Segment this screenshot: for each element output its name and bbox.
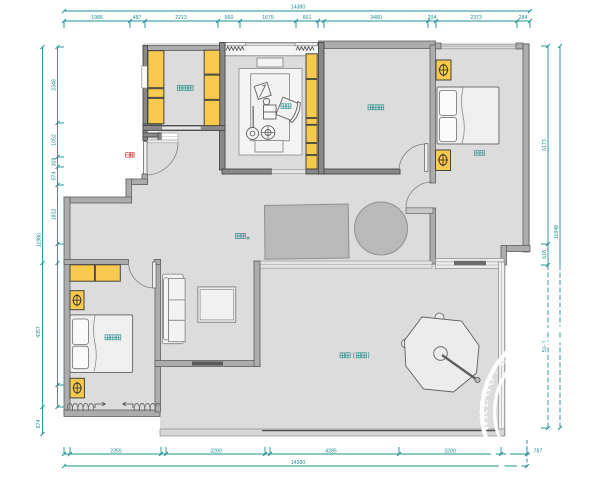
svg-text:2213: 2213 — [175, 15, 187, 21]
svg-text:11948: 11948 — [554, 225, 560, 239]
svg-text:618: 618 — [542, 250, 548, 259]
svg-text:674: 674 — [36, 420, 42, 429]
svg-text:660: 660 — [225, 15, 234, 21]
svg-text:E: E — [477, 399, 492, 408]
svg-text:3200: 3200 — [210, 449, 222, 455]
svg-text:4357: 4357 — [36, 326, 42, 338]
svg-text:2373: 2373 — [470, 15, 482, 21]
svg-text:661: 661 — [303, 15, 312, 21]
svg-text:14380: 14380 — [291, 460, 306, 466]
svg-text:308: 308 — [52, 158, 58, 167]
svg-text:2348: 2348 — [52, 79, 58, 91]
svg-text:4285: 4285 — [325, 449, 337, 455]
svg-text:1832: 1832 — [52, 209, 58, 221]
svg-text:6173: 6173 — [542, 139, 548, 151]
svg-text:1675: 1675 — [262, 15, 274, 21]
svg-text:204: 204 — [428, 15, 437, 21]
svg-text:3200: 3200 — [444, 449, 456, 455]
svg-text:1052: 1052 — [52, 134, 58, 146]
svg-text:14380: 14380 — [291, 5, 306, 11]
svg-text:2355: 2355 — [110, 449, 122, 455]
svg-text:11980: 11980 — [37, 233, 43, 247]
svg-text:W: W — [477, 419, 493, 433]
svg-text:K: K — [476, 409, 490, 419]
svg-text:3480: 3480 — [370, 15, 382, 21]
svg-text:487: 487 — [133, 15, 142, 21]
svg-text:574: 574 — [52, 172, 58, 181]
svg-text:1986: 1986 — [91, 15, 103, 21]
svg-text:787: 787 — [534, 449, 543, 455]
svg-text:284: 284 — [519, 15, 528, 21]
